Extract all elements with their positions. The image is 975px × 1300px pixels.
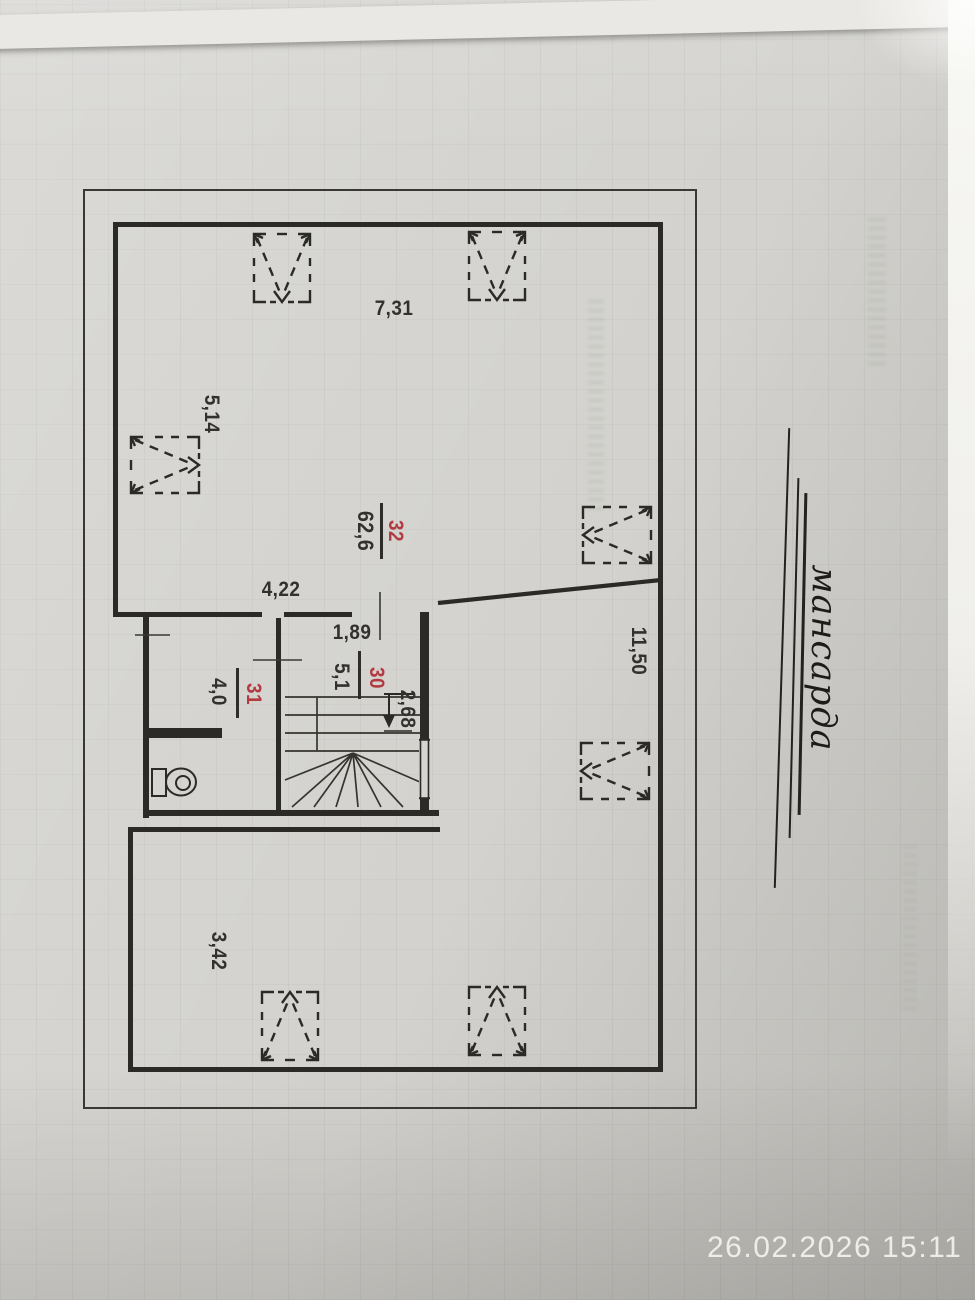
room-number-label: 31 — [241, 683, 265, 705]
room-area-label: 4,0 — [206, 678, 230, 706]
window-icon — [419, 739, 430, 799]
wall-segment — [438, 580, 661, 603]
skylight-icon — [262, 992, 318, 1060]
dimension-label-inner-width: 4,22 — [262, 578, 301, 602]
floor-plan-photo: 7,31 4,22 1,89 5,14 11,50 3,42 2,68 62,6… — [0, 0, 975, 1300]
dimension-label-top-width: 7,31 — [375, 297, 414, 321]
room-number-label: 32 — [383, 520, 407, 542]
skylight-icon — [581, 743, 649, 799]
room-label-separator — [358, 651, 361, 699]
dimension-label-stair-opening: 1,89 — [333, 621, 372, 645]
skylight-icon — [583, 507, 651, 563]
floor-title: мансарда — [802, 564, 844, 751]
skylight-icon — [254, 234, 310, 302]
room-label-separator — [236, 668, 239, 718]
toilet-icon — [152, 769, 196, 797]
camera-timestamp: 26.02.2026 15:11 — [707, 1231, 962, 1265]
dimension-label-right-height: 11,50 — [626, 627, 650, 676]
skylight-icon — [469, 232, 525, 300]
room-number-label: 30 — [364, 667, 388, 689]
room-area-label: 5,1 — [329, 663, 353, 691]
dimension-label-bottom-height: 3,42 — [206, 932, 230, 971]
dimension-label-left-height: 5,14 — [199, 395, 223, 434]
dimension-label-stair-depth: 2,68 — [395, 690, 419, 729]
skylight-icon — [131, 437, 199, 493]
room-area-label: 62,6 — [352, 511, 378, 551]
skylight-icon — [469, 987, 525, 1055]
